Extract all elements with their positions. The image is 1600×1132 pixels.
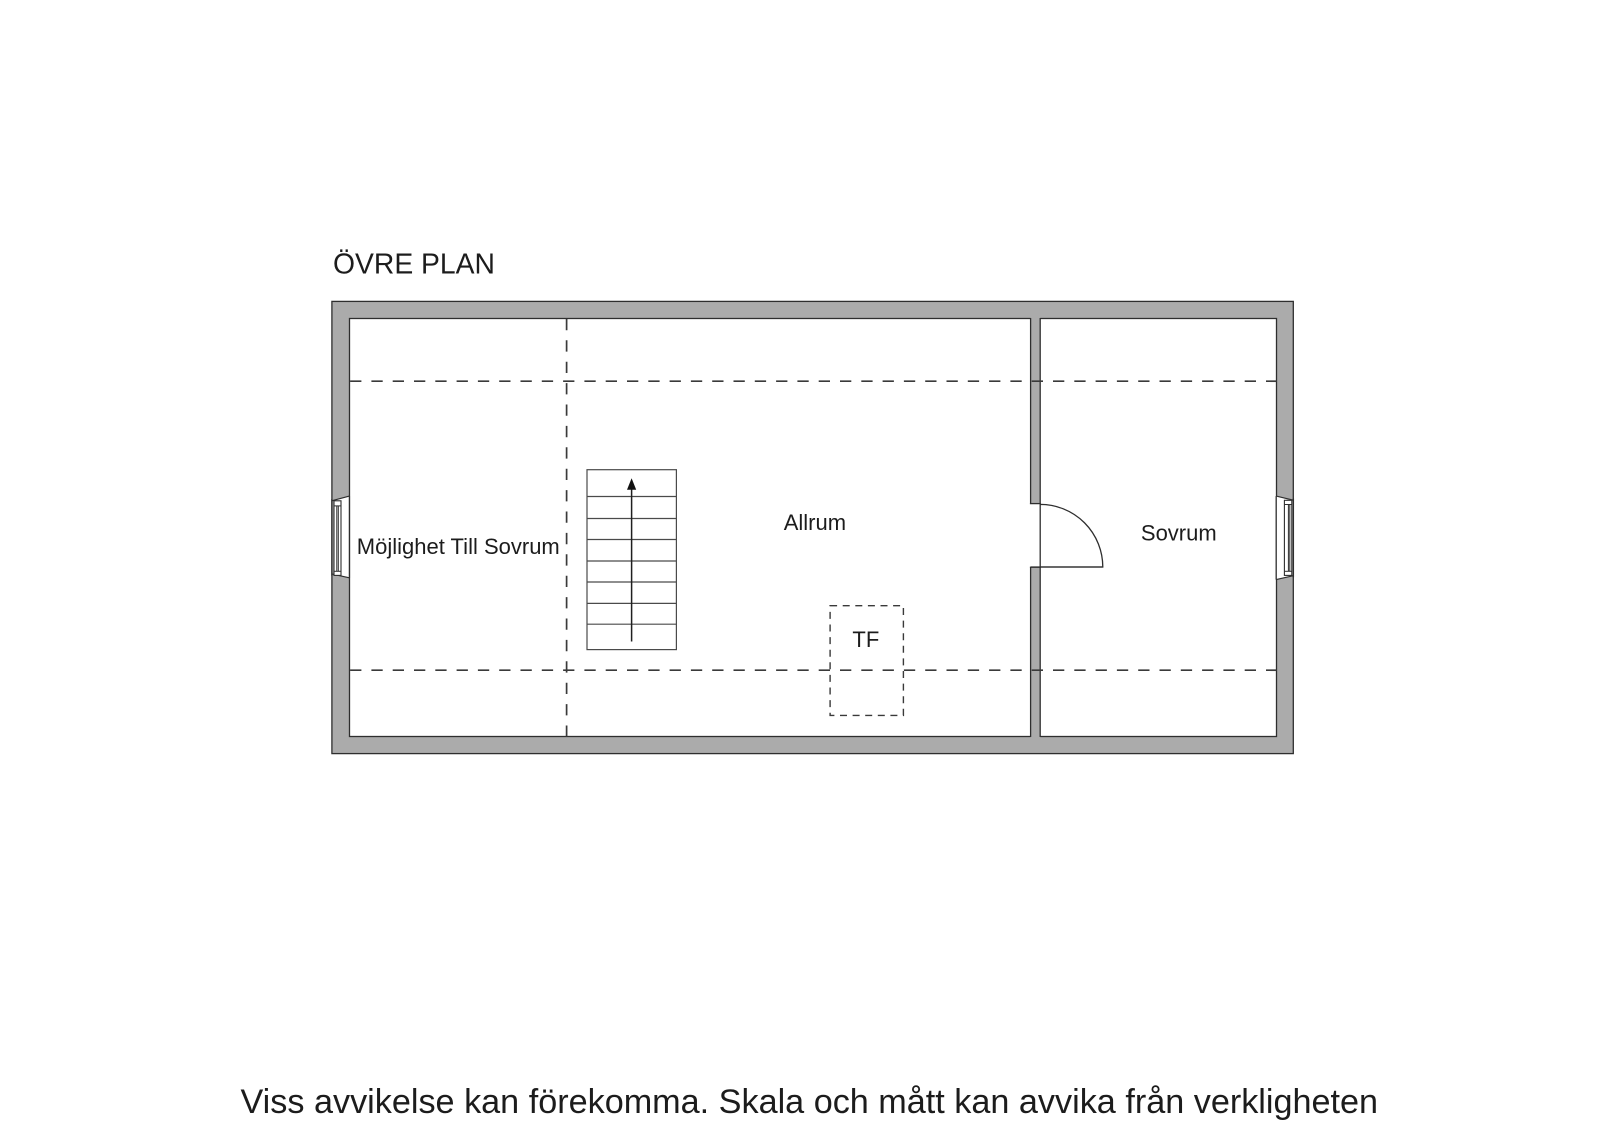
svg-text:Viss avvikelse kan förekomma.: Viss avvikelse kan förekomma. Skala och … <box>241 1083 1379 1121</box>
svg-text:Allrum: Allrum <box>784 510 846 535</box>
svg-text:Möjlighet Till Sovrum: Möjlighet Till Sovrum <box>357 534 560 559</box>
svg-text:TF: TF <box>852 627 879 652</box>
svg-text:Sovrum: Sovrum <box>1141 520 1217 545</box>
svg-text:ÖVRE PLAN: ÖVRE PLAN <box>333 248 495 280</box>
